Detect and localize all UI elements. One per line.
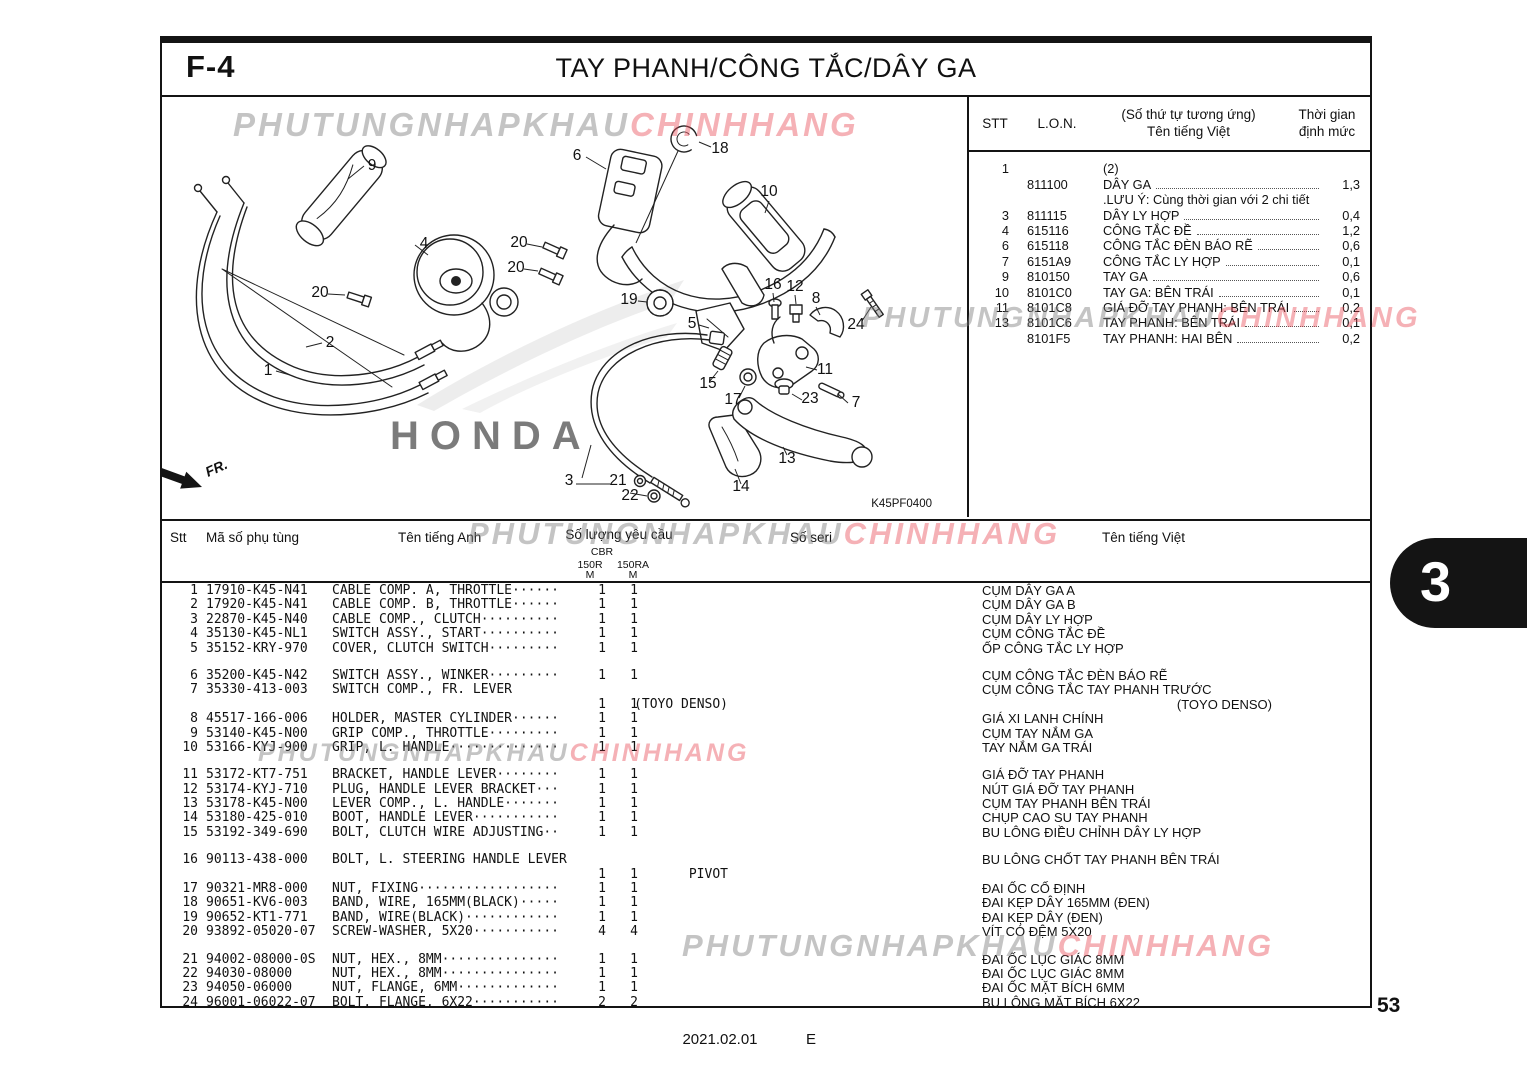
diagram-callout: 7 <box>852 394 861 411</box>
parts-row: 2294030-08000NUT, HEX., 8MM·············… <box>162 966 1370 980</box>
parts-row: 117910-K45-N41CABLE COMP. A, THROTTLE···… <box>162 583 1370 597</box>
parts-row: 953140-K45-N00GRIP COMP., THROTTLE······… <box>162 726 1370 740</box>
diagram-callout: 22 <box>621 487 638 504</box>
diagram-callout: 5 <box>688 315 697 332</box>
holder-bracket <box>810 308 843 337</box>
col-qty-m1: M <box>566 569 614 581</box>
col-stt: Stt <box>170 530 187 545</box>
winker-switch <box>597 147 664 284</box>
diagram-code: K45PF0400 <box>871 498 932 510</box>
throttle-ring <box>647 290 673 316</box>
diagram-callout: 19 <box>620 291 637 308</box>
reference-table: STT L.O.N. (Số thứ tự tương ứng) Tên tiế… <box>969 97 1370 517</box>
reference-table-header: STT L.O.N. (Số thứ tự tương ứng) Tên tiế… <box>969 97 1370 152</box>
ref-table-row: 76151A9CÔNG TẮC LY HỢP0,1 <box>969 253 1370 268</box>
ref-table-row: 3811115DÂY LY HỢP0,4 <box>969 207 1370 222</box>
parts-row: (TOYO DENSO)11(TOYO DENSO) <box>162 697 1370 711</box>
screw-20 <box>542 240 567 258</box>
ref-table-row: .LƯU Ý: Cùng thời gian với 2 chi tiết <box>969 192 1370 207</box>
diagram-callout: 15 <box>699 375 716 392</box>
ref-table-row: 9810150TAY GA0,6 <box>969 269 1370 284</box>
fr-label: FR. <box>203 456 230 480</box>
diagram-callout: 3 <box>565 472 574 489</box>
adjuster-ring <box>740 369 756 385</box>
col-qty: Số lượng yêu cầu <box>519 527 719 542</box>
ref-table-row: 108101C0TAY GA: BÊN TRÁI0,1 <box>969 284 1370 299</box>
parts-list: Stt Mã số phụ tùng Tên tiếng Anh Số lượn… <box>162 519 1370 1006</box>
ref-table-row: 811100DÂY GA1,3 <box>969 176 1370 191</box>
parts-row: 1553192-349-690BOLT, CLUTCH WIRE ADJUSTI… <box>162 825 1370 839</box>
diagram-callout: 14 <box>732 478 750 495</box>
parts-row: 1253174-KYJ-710PLUG, HANDLE LEVER BRACKE… <box>162 782 1370 796</box>
fr-direction-arrow: FR. <box>162 456 230 496</box>
diagram-callout: 18 <box>711 140 728 157</box>
parts-diagram: HONDA <box>162 97 969 517</box>
diagram-callout: 1 <box>264 362 273 379</box>
parts-row: 435130-K45-NL1SWITCH ASSY., START·······… <box>162 626 1370 640</box>
diagram-callout: 2 <box>326 334 335 351</box>
diagram-callout: 11 <box>817 361 833 378</box>
ref-table-body: 1(2)811100DÂY GA1,3.LƯU Ý: Cùng thời gia… <box>969 152 1370 346</box>
parts-row: 2093892-05020-07SCREW-WASHER, 5X20······… <box>162 924 1370 938</box>
ref-col-time-line2: định mức <box>1284 124 1370 141</box>
diagram-callout: 12 <box>786 278 803 295</box>
diagram-callout: 16 <box>764 276 781 293</box>
parts-row: PIVOT11 <box>162 867 1370 881</box>
diagram-callout: 23 <box>801 390 818 407</box>
parts-row: 735330-413-003SWITCH COMP., FR. LEVERCỤM… <box>162 682 1370 696</box>
ref-col-lon: L.O.N. <box>1021 116 1093 131</box>
col-vi: Tên tiếng Việt <box>1102 530 1185 545</box>
parts-row: 1353178-K45-N00LEVER COMP., L. HANDLE···… <box>162 796 1370 810</box>
header-band: F-4 TAY PHANH/CÔNG TẮC/DÂY GA <box>160 43 1372 95</box>
diagram-callout: 6 <box>573 147 582 164</box>
diagram-callout: 13 <box>778 450 795 467</box>
parts-row-spacer <box>162 939 1370 952</box>
diagram-callout: 9 <box>368 157 377 174</box>
ref-col-name: (Số thứ tự tương ứng) Tên tiếng Việt <box>1093 107 1284 141</box>
parts-row: 2194002-08000-0SNUT, HEX., 8MM··········… <box>162 952 1370 966</box>
col-en: Tên tiếng Anh <box>398 530 481 545</box>
parts-row: 1153172-KT7-751BRACKET, HANDLE LEVER····… <box>162 767 1370 781</box>
parts-row: 1790321-MR8-000NUT, FIXING··············… <box>162 881 1370 895</box>
parts-list-header: Stt Mã số phụ tùng Tên tiếng Anh Số lượn… <box>162 521 1370 583</box>
page-title: TAY PHANH/CÔNG TẮC/DÂY GA <box>162 53 1370 84</box>
parts-row-spacer <box>162 839 1370 852</box>
footer-date: 2021.02.01 <box>640 1031 800 1048</box>
parts-row: 1453180-425-010BOOT, HANDLE LEVER·······… <box>162 810 1370 824</box>
parts-row: 1990652-KT1-771BAND, WIRE(BLACK)········… <box>162 910 1370 924</box>
page-number: 53 <box>1377 994 1400 1018</box>
lever-bracket <box>758 317 819 388</box>
ref-table-row: 4615116CÔNG TẮC ĐỀ1,2 <box>969 223 1370 238</box>
ref-col-time: Thời gian định mức <box>1284 107 1370 141</box>
ref-table-row: 118101C8GIÁ ĐỠ TAY PHANH: BÊN TRÁI0,2 <box>969 300 1370 315</box>
bracket-plug <box>775 379 793 394</box>
ref-col-stt: STT <box>969 116 1021 131</box>
diagram-callout: 20 <box>311 284 329 301</box>
parts-row-spacer <box>162 655 1370 668</box>
diagram-callout: 17 <box>724 391 741 408</box>
diagram-callout: 20 <box>507 259 525 276</box>
pivot-bolt <box>769 299 781 319</box>
diagram-callout: 4 <box>420 235 429 252</box>
header-top-rule <box>160 36 1372 43</box>
flange-bolt <box>861 290 884 318</box>
wire-adjuster <box>712 346 733 371</box>
parts-row: 845517-166-006HOLDER, MASTER CYLINDER···… <box>162 711 1370 725</box>
diagram-callout: 8 <box>812 290 821 307</box>
parts-row: 635200-K45-N42SWITCH ASSY., WINKER······… <box>162 668 1370 682</box>
parts-row: 1690113-438-000BOLT, L. STEERING HANDLE … <box>162 852 1370 866</box>
ref-col-name-line1: (Số thứ tự tương ứng) <box>1093 107 1284 124</box>
col-qty-m2: M <box>609 569 657 581</box>
parts-row: 535152-KRY-970COVER, CLUTCH SWITCH······… <box>162 641 1370 655</box>
parts-row: 2496001-06022-07BOLT, FLANGE, 6X22······… <box>162 995 1370 1006</box>
ref-col-name-line2: Tên tiếng Việt <box>1093 124 1284 141</box>
diagram-callout: 24 <box>847 316 865 333</box>
parts-list-body: 117910-K45-N41CABLE COMP. A, THROTTLE···… <box>162 583 1370 1006</box>
diagram-callout: 20 <box>510 234 528 251</box>
left-grip <box>291 140 392 251</box>
ref-table-row: 1(2) <box>969 161 1370 176</box>
col-serial: Số seri <box>790 530 832 545</box>
content-frame: HONDA <box>160 95 1372 1008</box>
ref-table-row: 138101C6TAY PHANH: BÊN TRÁI0,1 <box>969 315 1370 330</box>
parts-row: 217920-K45-N41CABLE COMP. B, THROTTLE···… <box>162 597 1370 611</box>
col-code: Mã số phụ tùng <box>206 530 299 545</box>
ref-col-time-line1: Thời gian <box>1284 107 1370 124</box>
footer-revision: E <box>806 1031 816 1048</box>
parts-row-spacer <box>162 754 1370 767</box>
parts-row: 1053166-KYJ-900GRIP, L. HANDLE··········… <box>162 740 1370 754</box>
fixing-nut <box>790 305 802 322</box>
switch-housing <box>414 235 518 351</box>
parts-diagram-svg: HONDA <box>162 97 967 517</box>
diagram-callout: 10 <box>760 183 778 200</box>
honda-watermark-text: HONDA <box>390 414 592 458</box>
screw-20 <box>538 266 563 284</box>
chapter-tab: 3 <box>1390 538 1527 628</box>
ref-table-row: 8101F5TAY PHANH: HAI BÊN0,2 <box>969 330 1370 345</box>
screw-20 <box>346 290 371 307</box>
ref-table-row: 6615118CÔNG TẮC ĐÈN BÁO RẼ0,6 <box>969 238 1370 253</box>
col-qty-model: CBR <box>572 546 632 558</box>
catalog-page: F-4 TAY PHANH/CÔNG TẮC/DÂY GA HONDA <box>0 0 1527 1080</box>
parts-row: 2394050-06000NUT, FLANGE, 6MM···········… <box>162 980 1370 994</box>
parts-row: 1890651-KV6-003BAND, WIRE, 165MM(BLACK)·… <box>162 895 1370 909</box>
parts-row: 322870-K45-N40CABLE COMP., CLUTCH·······… <box>162 612 1370 626</box>
